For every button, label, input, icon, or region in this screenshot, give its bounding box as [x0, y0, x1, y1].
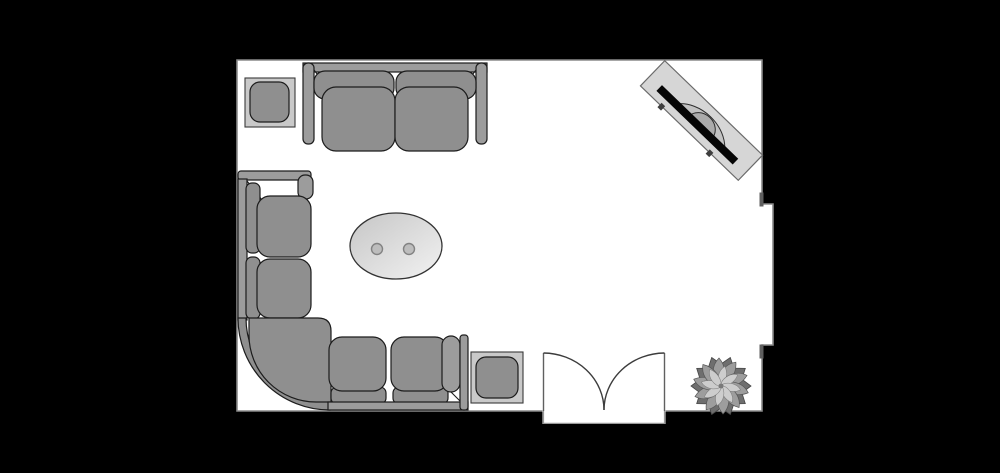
table-knob: [404, 244, 415, 255]
seat-cushion: [395, 87, 468, 151]
table-inset: [250, 82, 289, 122]
coffee-table[interactable]: [350, 213, 442, 279]
wall-break-tick: [760, 193, 764, 207]
sectional-arm-cap: [442, 336, 460, 392]
seat-cushion: [391, 337, 448, 391]
sectional-back-bottom: [328, 402, 468, 410]
sofa-arm-right: [476, 63, 487, 144]
table-knob: [372, 244, 383, 255]
seat-cushion: [257, 259, 311, 318]
table-inset: [476, 357, 518, 398]
seat-cushion: [322, 87, 395, 151]
wall-break-tick: [760, 345, 764, 359]
sectional-arm-cap: [298, 175, 313, 199]
sofa-arm-left: [303, 63, 314, 144]
floor-plan-drawing: [0, 0, 1000, 473]
seat-cushion: [257, 196, 311, 257]
door-threshold: [543, 409, 666, 424]
plant-center: [719, 384, 724, 389]
floor-plan-canvas: [0, 0, 1000, 473]
side-table-bottom[interactable]: [471, 352, 523, 403]
seat-cushion: [329, 337, 386, 391]
sectional-arm-right: [460, 335, 468, 410]
side-table-top-left[interactable]: [245, 78, 295, 127]
table-top: [350, 213, 442, 279]
